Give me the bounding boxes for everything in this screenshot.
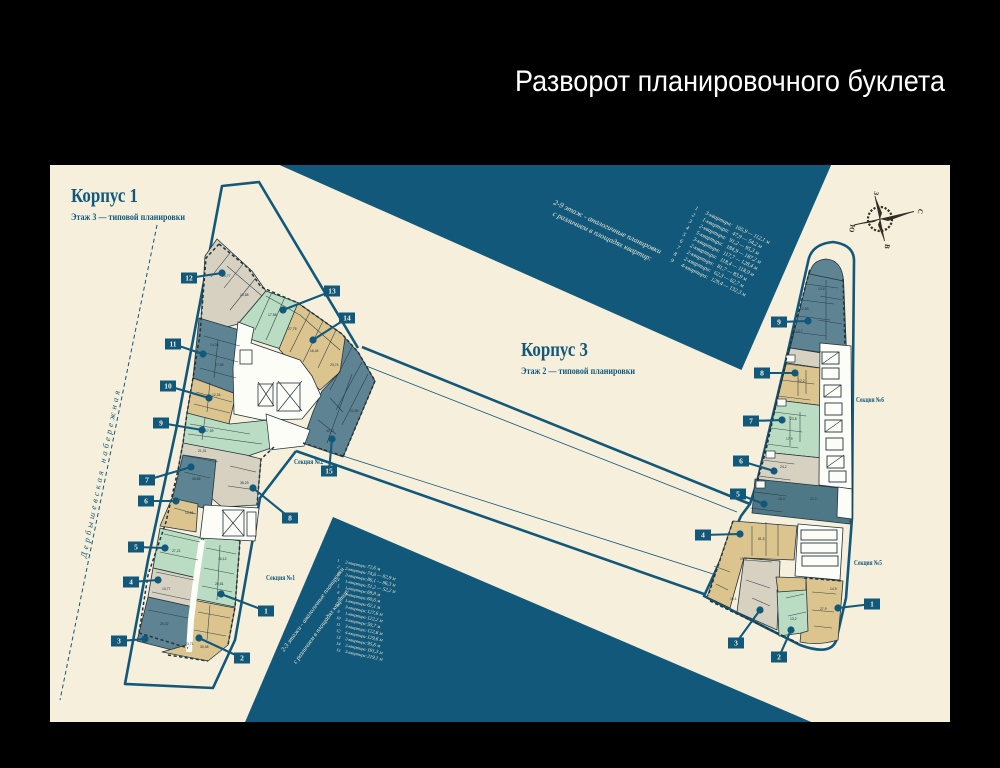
svg-text:38,29: 38,29 [240, 481, 249, 485]
svg-text:13: 13 [328, 287, 336, 296]
svg-text:4: 4 [129, 578, 133, 587]
svg-text:17,58: 17,58 [268, 313, 277, 317]
svg-text:8: 8 [760, 369, 764, 378]
svg-text:18,0: 18,0 [778, 497, 785, 501]
svg-text:24,2: 24,2 [780, 465, 787, 469]
svg-text:7: 7 [749, 417, 753, 426]
svg-text:19,1: 19,1 [730, 597, 737, 601]
svg-text:19,9: 19,9 [740, 557, 747, 561]
svg-text:3: 3 [117, 637, 121, 646]
svg-text:27,75: 27,75 [288, 327, 297, 331]
svg-text:11: 11 [169, 340, 176, 349]
svg-text:12: 12 [185, 274, 193, 283]
svg-text:22,89: 22,89 [800, 307, 809, 311]
svg-text:22,89: 22,89 [350, 409, 359, 413]
svg-text:5: 5 [736, 490, 740, 499]
svg-text:12,2: 12,2 [798, 379, 805, 383]
svg-text:27,9: 27,9 [820, 607, 827, 611]
svg-text:23,2: 23,2 [810, 497, 817, 501]
svg-text:6: 6 [144, 497, 148, 506]
svg-text:12,34: 12,34 [212, 393, 221, 397]
svg-text:2: 2 [240, 654, 244, 663]
svg-text:Секция №1: Секция №1 [266, 574, 295, 582]
svg-text:40,17: 40,17 [326, 429, 335, 433]
svg-text:16,44: 16,44 [310, 349, 319, 353]
svg-text:6: 6 [739, 457, 743, 466]
svg-text:Разворот планировочного буклет: Разворот планировочного буклета [515, 65, 945, 98]
svg-text:5: 5 [134, 543, 138, 552]
svg-text:30,48: 30,48 [200, 645, 209, 649]
svg-text:20,81: 20,81 [215, 582, 224, 586]
svg-text:23,74: 23,74 [330, 363, 339, 367]
svg-text:7: 7 [145, 476, 149, 485]
svg-text:23,71: 23,71 [185, 642, 194, 646]
svg-text:14,7: 14,7 [796, 329, 803, 333]
svg-text:14,08: 14,08 [210, 343, 219, 347]
svg-text:15: 15 [325, 467, 333, 476]
svg-text:Секция №6: Секция №6 [856, 396, 884, 404]
svg-text:10: 10 [164, 382, 172, 391]
svg-text:17,59: 17,59 [205, 429, 214, 433]
svg-text:25,02: 25,02 [160, 622, 169, 626]
svg-text:8: 8 [288, 514, 292, 523]
svg-text:3: 3 [734, 639, 738, 648]
svg-text:Секция №5: Секция №5 [854, 559, 882, 567]
svg-text:1: 1 [264, 607, 268, 616]
svg-text:2: 2 [777, 653, 781, 662]
svg-text:23,8: 23,8 [790, 417, 797, 421]
svg-text:16,12: 16,12 [218, 557, 227, 561]
svg-text:27,21: 27,21 [172, 549, 181, 553]
svg-text:Корпус 3: Корпус 3 [521, 339, 588, 361]
svg-text:13,2: 13,2 [790, 617, 797, 621]
svg-text:81,5: 81,5 [758, 537, 765, 541]
svg-text:17,69: 17,69 [215, 363, 224, 367]
svg-text:38,88: 38,88 [192, 477, 201, 481]
svg-text:15,66: 15,66 [185, 511, 194, 515]
svg-text:Этаж 2 — типовой планировки: Этаж 2 — типовой планировки [521, 366, 635, 376]
svg-text:14,9: 14,9 [830, 587, 837, 591]
svg-text:21,31: 21,31 [198, 449, 207, 453]
svg-text:Секция №2: Секция №2 [294, 458, 323, 466]
svg-text:Корпус 1: Корпус 1 [71, 185, 138, 207]
svg-text:4: 4 [701, 531, 705, 540]
svg-text:14: 14 [343, 314, 351, 323]
svg-text:13,77: 13,77 [162, 587, 171, 591]
svg-text:17,9: 17,9 [786, 437, 793, 441]
svg-text:1: 1 [870, 600, 874, 609]
svg-text:9: 9 [777, 318, 781, 327]
svg-text:Этаж 3 — типовой планировки: Этаж 3 — типовой планировки [71, 212, 185, 222]
svg-text:13,6: 13,6 [818, 287, 825, 291]
svg-text:13,88: 13,88 [240, 293, 249, 297]
svg-text:Ю: Ю [847, 224, 856, 233]
svg-text:9: 9 [159, 419, 163, 428]
